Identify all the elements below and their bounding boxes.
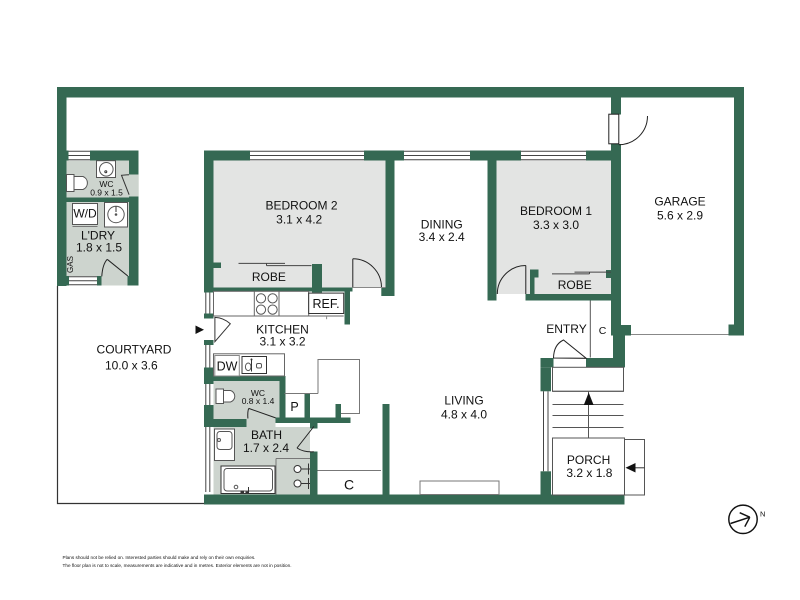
svg-text:ROBE: ROBE: [558, 278, 592, 292]
svg-text:BEDROOM 2: BEDROOM 2: [265, 199, 337, 213]
svg-text:W/D: W/D: [73, 207, 97, 221]
svg-text:BATH: BATH: [251, 428, 282, 442]
svg-text:GAS: GAS: [66, 256, 75, 273]
svg-text:3.1 x 3.2: 3.1 x 3.2: [259, 335, 305, 349]
svg-text:1.8 x 1.5: 1.8 x 1.5: [76, 241, 122, 255]
svg-text:5.6 x 2.9: 5.6 x 2.9: [657, 209, 703, 223]
svg-text:LIVING: LIVING: [444, 394, 483, 408]
svg-text:3.4 x 2.4: 3.4 x 2.4: [419, 230, 465, 244]
svg-text:DW: DW: [217, 360, 238, 374]
svg-text:1.7 x 2.4: 1.7 x 2.4: [243, 441, 289, 455]
svg-text:COURTYARD: COURTYARD: [97, 343, 172, 357]
svg-text:The floor plan is not to scale: The floor plan is not to scale, measurem…: [63, 563, 292, 568]
svg-text:N: N: [760, 510, 765, 519]
svg-text:ROBE: ROBE: [252, 270, 286, 284]
svg-text:Plans should not be relied on.: Plans should not be relied on. Intereste…: [63, 555, 256, 560]
svg-text:GARAGE: GARAGE: [654, 195, 705, 209]
svg-text:4.8 x 4.0: 4.8 x 4.0: [441, 408, 487, 422]
svg-text:C: C: [344, 476, 354, 492]
svg-text:REF.: REF.: [312, 297, 339, 311]
svg-text:0.9 x 1.5: 0.9 x 1.5: [90, 188, 123, 198]
svg-text:3.2 x 1.8: 3.2 x 1.8: [566, 466, 612, 480]
svg-text:P: P: [290, 400, 298, 414]
svg-text:3.1 x 4.2: 3.1 x 4.2: [276, 213, 322, 227]
svg-text:0.8 x 1.4: 0.8 x 1.4: [242, 396, 275, 406]
svg-text:3.3 x 3.0: 3.3 x 3.0: [533, 218, 579, 232]
svg-text:PORCH: PORCH: [567, 453, 610, 467]
svg-text:BEDROOM 1: BEDROOM 1: [520, 204, 592, 218]
svg-text:ENTRY: ENTRY: [546, 322, 586, 336]
svg-text:C: C: [599, 325, 607, 337]
svg-text:10.0 x 3.6: 10.0 x 3.6: [105, 358, 158, 372]
